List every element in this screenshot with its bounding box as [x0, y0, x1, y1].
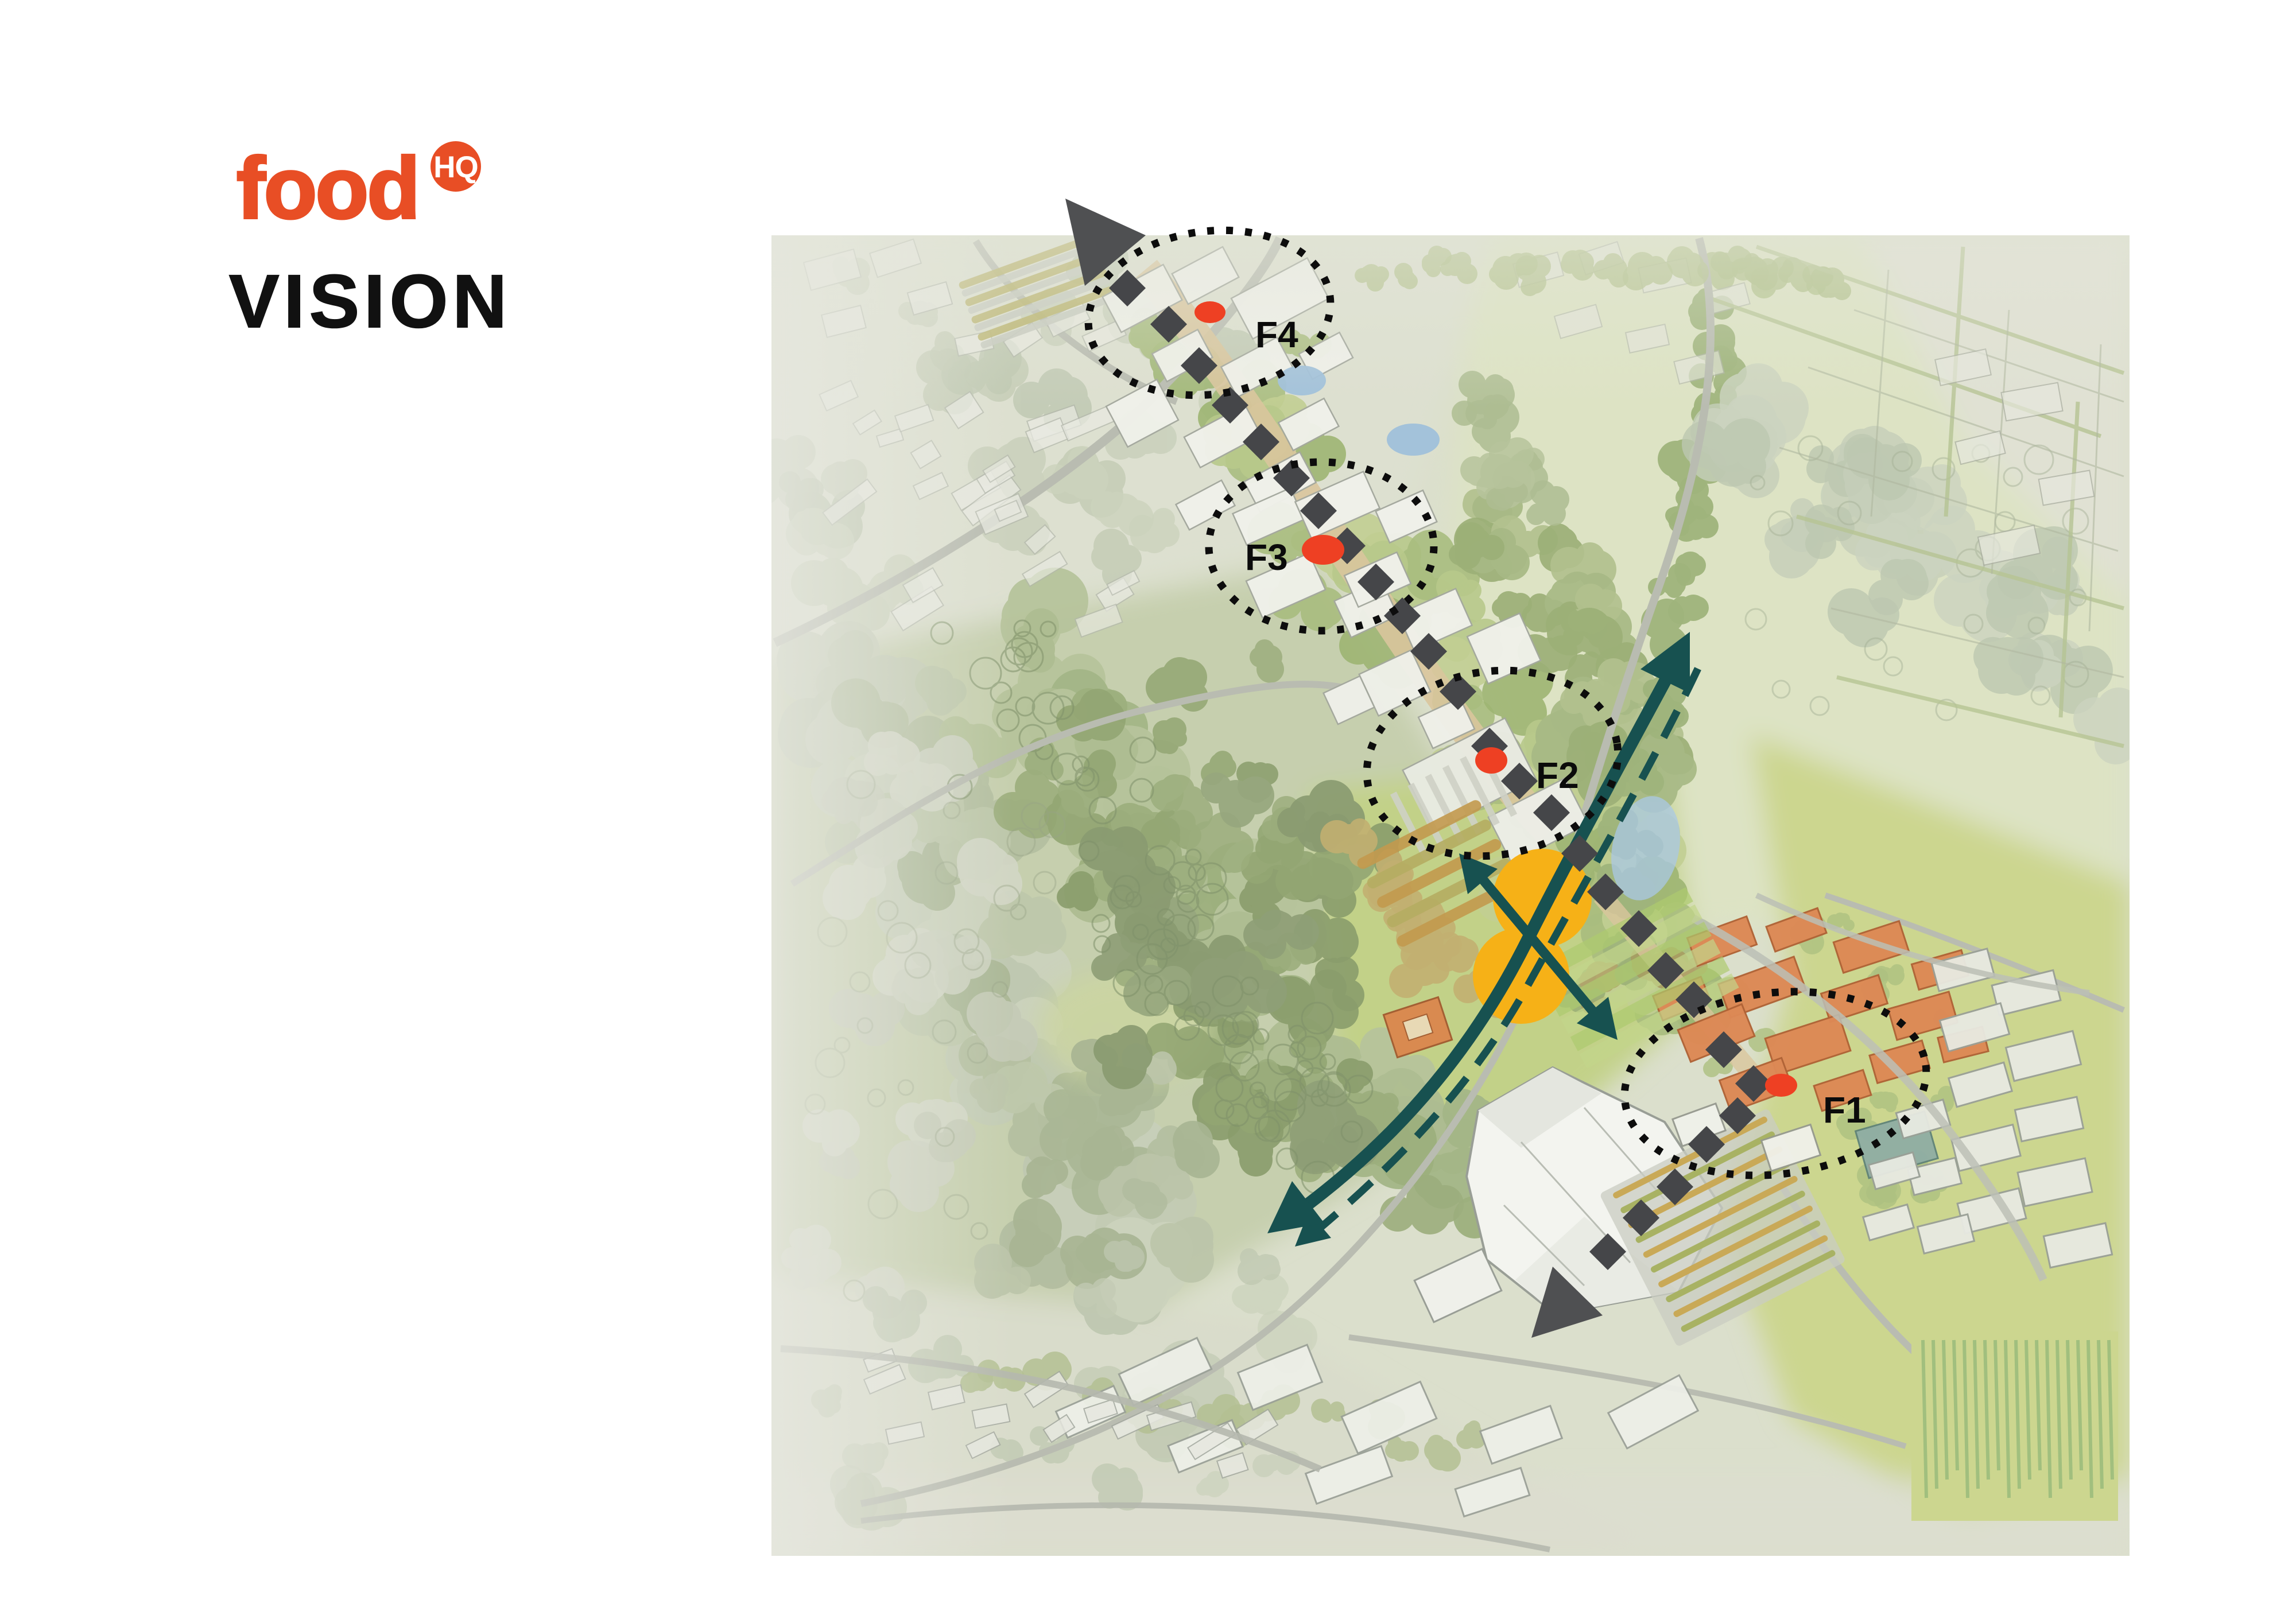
svg-text:F2: F2 [1536, 755, 1579, 796]
svg-text:food: food [236, 139, 418, 237]
svg-text:VISION: VISION [229, 259, 511, 343]
svg-text:F4: F4 [1255, 314, 1298, 355]
svg-text:F3: F3 [1245, 537, 1288, 578]
svg-text:HQ: HQ [433, 150, 478, 184]
svg-text:F1: F1 [1823, 1089, 1866, 1131]
